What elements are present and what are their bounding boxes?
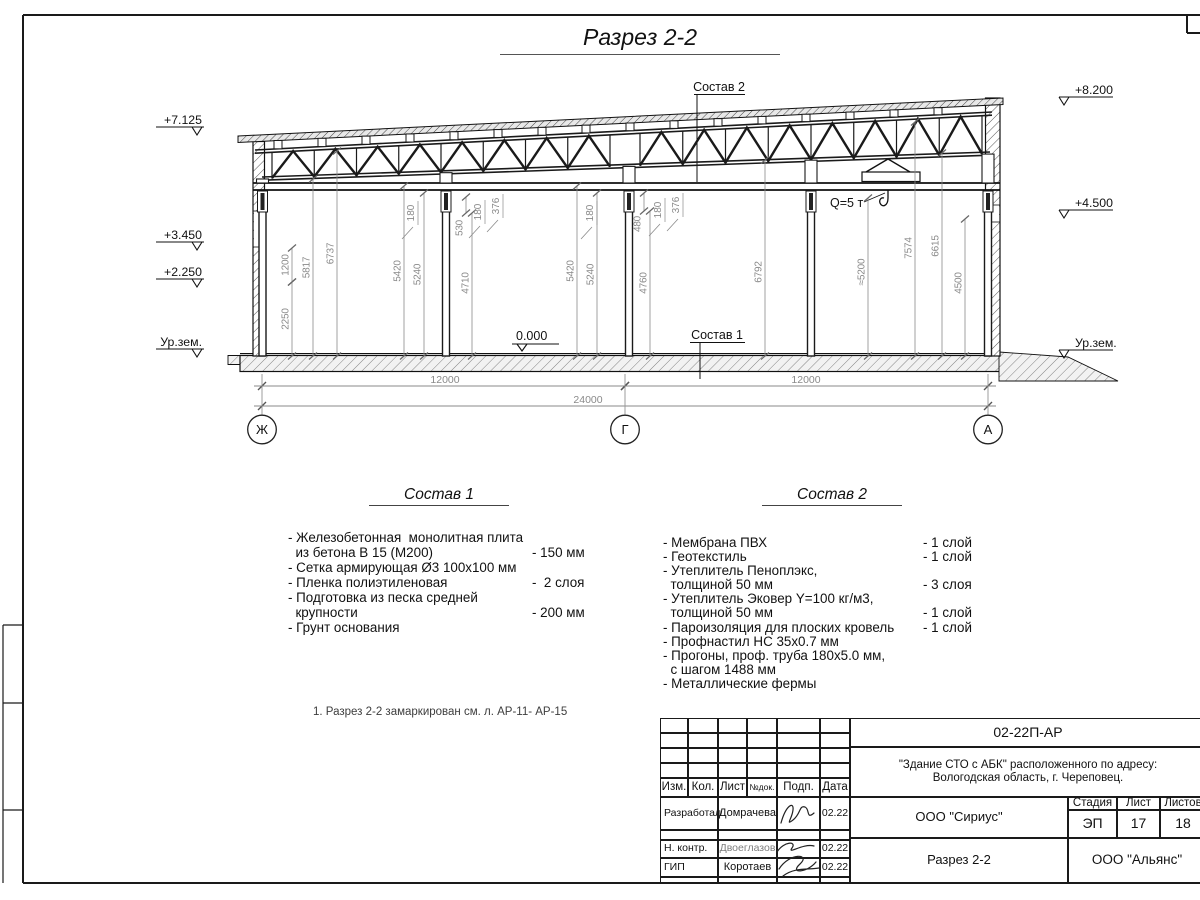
tb-col-data: Дата: [820, 778, 850, 797]
composition2-row: толщиной 50 мм- 3 слоя: [663, 578, 1003, 592]
purlin: [846, 112, 854, 119]
tb-name-developer: Домрачева: [718, 797, 777, 830]
composition2-title: Состав 2: [762, 486, 902, 506]
layer-text: толщиной 50 мм: [663, 577, 773, 592]
composition1-row: - Подготовка из песка средней: [288, 590, 608, 605]
composition1-row: - Сетка армирующая Ø3 100х100 мм: [288, 560, 608, 575]
tb-sheets-value: 18: [1160, 810, 1200, 838]
tb-empty-cell: [660, 733, 688, 748]
tb-empty-cell: [688, 733, 718, 748]
leader-line: [667, 219, 678, 231]
dim-label: 4710: [461, 272, 472, 294]
composition2-row: - Утеплитель Пеноплэкс,: [663, 564, 1003, 578]
layer-value: - 1 слой: [923, 536, 972, 550]
composition1-row: - Железобетонная монолитная плита: [288, 530, 608, 545]
elevation-mark-arrow: [1059, 97, 1069, 105]
tb-sheets-label: Листов: [1160, 797, 1200, 810]
composition2-row: - Геотекстиль- 1 слой: [663, 550, 1003, 564]
truss-bearing: [257, 179, 269, 183]
layer-value: - 150 мм: [532, 545, 585, 560]
layer-value: - 1 слой: [923, 606, 972, 620]
truss-bearing: [805, 160, 817, 183]
purlin: [494, 130, 502, 138]
tb-empty-cell: [688, 763, 718, 778]
tb-sheet-value: 17: [1117, 810, 1160, 838]
ground-ramp-right: [999, 352, 1118, 381]
composition1-list: - Железобетонная монолитная плита из бет…: [288, 530, 608, 635]
composition2-row: с шагом 1488 мм: [663, 663, 1003, 677]
tb-sig-gip: [777, 858, 820, 877]
span-dim-label: 12000: [430, 374, 459, 386]
composition1-row: крупности- 200 мм: [288, 605, 608, 620]
layer-text: - Геотекстиль: [663, 549, 747, 564]
sheet-note: 1. Разрез 2-2 замаркирован см. л. АР-11-…: [313, 706, 567, 718]
composition2-list: - Мембрана ПВХ- 1 слой- Геотекстиль- 1 с…: [663, 536, 1003, 691]
tb-empty-cell: [660, 718, 688, 733]
tb-empty-cell: [820, 748, 850, 763]
dim-label: 7574: [904, 237, 915, 259]
dim-label: 5817: [302, 256, 313, 278]
layer-text: - Грунт основания: [288, 620, 399, 635]
tb-empty-cell: [718, 763, 747, 778]
elevation-mark-label: Ур.зем.: [1075, 336, 1117, 350]
crane-capacity-label: Q=5 т: [830, 196, 863, 210]
purlin: [626, 123, 634, 131]
tb-empty-cell: [820, 733, 850, 748]
left-margin-strip: [3, 625, 23, 883]
purlin: [582, 125, 590, 133]
leader-dim-label: 180: [473, 203, 484, 220]
purlin: [318, 138, 326, 146]
tb-empty-cell: [820, 763, 850, 778]
column-anchor: [809, 193, 813, 210]
dim-label: 4760: [639, 272, 650, 294]
layer-value: - 1 слой: [923, 550, 972, 564]
dim-label: 6737: [326, 242, 337, 264]
composition2-row: толщиной 50 мм- 1 слой: [663, 606, 1003, 620]
elevation-mark-arrow: [192, 242, 202, 250]
crane-hook-icon: [880, 190, 888, 206]
tb-date-gip: 02.22: [820, 858, 850, 877]
composition2-row: - Прогоны, проф. труба 180х5.0 мм,: [663, 649, 1003, 663]
elevation-mark-label: Ур.зем.: [160, 335, 202, 349]
tb-stage-value: ЭП: [1068, 810, 1117, 838]
tb-sheet-label: Лист: [1117, 797, 1160, 810]
purlin: [758, 116, 766, 123]
layer-text: - Металлические фермы: [663, 676, 816, 691]
layer-text: - Утеплитель Эковер Y=100 кг/м3,: [663, 591, 873, 606]
tb-col-izm: Изм.: [660, 778, 688, 797]
layer-text: крупности: [288, 605, 358, 620]
tb-empty-cell: [747, 763, 777, 778]
leader-line: [649, 224, 660, 236]
elevation-mark-label: +8.200: [1075, 83, 1113, 97]
column: [443, 192, 450, 356]
tb-empty-cell: [718, 718, 747, 733]
elevation-mark-label: +7.125: [164, 113, 202, 127]
tb-col-list: Лист: [718, 778, 747, 797]
layer-text: - Мембрана ПВХ: [663, 535, 767, 550]
tb-role-ncontr: Н. контр.: [660, 840, 718, 858]
composition2-row: - Мембрана ПВХ- 1 слой: [663, 536, 1003, 550]
purlin: [890, 110, 898, 117]
purlin: [406, 134, 414, 142]
dim-label: 5240: [586, 263, 597, 285]
drawing-sheet: { "page_title": "Разрез 2-2", "colors": …: [0, 0, 1200, 900]
truss-bearing: [440, 173, 452, 183]
svg-text:Состав 1: Состав 1: [691, 328, 743, 342]
leader-dim-label: 376: [671, 196, 682, 213]
elevation-mark-arrow: [192, 279, 202, 287]
layer-value: - 1 слой: [923, 621, 972, 635]
layer-text: из бетона В 15 (М200): [288, 545, 433, 560]
leader-line: [469, 226, 480, 238]
tb-name-ncontr: Двоеглазов: [718, 840, 777, 858]
tb-empty-cell: [660, 748, 688, 763]
purlin: [934, 108, 942, 115]
dim-label: 6792: [754, 261, 765, 283]
layer-value: - 2 слоя: [532, 575, 584, 590]
purlin: [450, 132, 458, 140]
tb-date-developer: 02.22: [820, 797, 850, 830]
composition2-row: - Пароизоляция для плоских кровель- 1 сл…: [663, 621, 1003, 635]
elevation-mark-label: +4.500: [1075, 196, 1113, 210]
tb-date-ncontr: 02.22: [820, 840, 850, 858]
elevation-mark-arrow: [1059, 210, 1069, 218]
tb-empty-cell: [747, 748, 777, 763]
composition1-row: - Грунт основания: [288, 620, 608, 635]
tb-empty-cell: [747, 718, 777, 733]
column-anchor: [986, 193, 990, 210]
tb-org-middle: ООО "Сириус": [850, 797, 1068, 838]
tb-org-bottom: ООО "Альянс": [1068, 838, 1200, 883]
column: [808, 192, 815, 356]
tb-empty-cell: [777, 763, 820, 778]
tb-role-gip: ГИП: [660, 858, 718, 877]
leader-line: [581, 227, 592, 239]
zero-level-mark: 0.000: [512, 329, 559, 351]
column: [626, 192, 633, 356]
elevation-mark-arrow: [192, 127, 202, 135]
elevation-mark-arrow: [192, 349, 202, 357]
tb-empty-cell: [688, 748, 718, 763]
elevation-mark-label: +2.250: [164, 265, 202, 279]
tb-empty-cell: [820, 718, 850, 733]
dim-label: 2250: [281, 308, 292, 330]
layer-value: - 200 мм: [532, 605, 585, 620]
column-anchor: [627, 193, 631, 210]
leader-dim-label: 180: [406, 204, 417, 221]
purlin: [274, 141, 282, 149]
tb-sig-developer: [777, 797, 820, 830]
layer-text: - Железобетонная монолитная плита: [288, 530, 523, 545]
tb-project-name: "Здание СТО с АБК" расположенного по адр…: [850, 747, 1200, 797]
dim-label: 480: [633, 215, 644, 232]
column-anchor: [261, 193, 265, 210]
tb-empty-cell: [660, 763, 688, 778]
tb-col-ndok: №док.: [747, 778, 777, 797]
tb-col-podp: Подп.: [777, 778, 820, 797]
leader-dim-label: 376: [491, 197, 502, 214]
dim-label: 4500: [954, 272, 965, 294]
layer-text: - Пароизоляция для плоских кровель: [663, 620, 894, 635]
tb-empty-cell: [747, 733, 777, 748]
tb-name-gip: Коротаев: [718, 858, 777, 877]
tb-empty-cell: [688, 718, 718, 733]
layer-text: - Пленка полиэтиленовая: [288, 575, 447, 590]
purlin: [362, 136, 370, 144]
tb-empty-cell: [777, 733, 820, 748]
truss-bearing: [982, 154, 994, 183]
tb-empty-cell: [777, 748, 820, 763]
composition2-row: - Металлические фермы: [663, 677, 1003, 691]
dim-label: 5420: [566, 260, 577, 282]
tb-empty-cell: [718, 748, 747, 763]
title-block: Изм. Кол. Лист №док. Подп. Дата Разработ…: [660, 718, 1200, 883]
axis-bubbles: ЖГА: [248, 374, 1003, 444]
purlin: [670, 121, 678, 129]
column: [985, 192, 992, 356]
composition2-row: - Утеплитель Эковер Y=100 кг/м3,: [663, 592, 1003, 606]
axis-bubble-label: А: [984, 422, 993, 437]
tb-col-kol: Кол.: [688, 778, 718, 797]
layer-text: - Прогоны, проф. труба 180х5.0 мм,: [663, 648, 885, 663]
span-dim-label: 24000: [573, 394, 602, 406]
tb-role-developer: Разработал: [660, 797, 718, 830]
columns: [258, 191, 994, 356]
tb-sig-ncontr: [777, 840, 820, 858]
truss-bearing: [623, 166, 635, 183]
axis-bubble-label: Ж: [256, 422, 268, 437]
layer-text: - Утеплитель Пеноплэкс,: [663, 563, 817, 578]
purlin: [802, 114, 810, 121]
tb-sheet-title: Разрез 2-2: [850, 838, 1068, 883]
layer-text: толщиной 50 мм: [663, 605, 773, 620]
composition1-row: - Пленка полиэтиленовая- 2 слоя: [288, 575, 608, 590]
purlin: [714, 119, 722, 126]
dim-label: 5240: [413, 263, 424, 285]
leader-dim-label: 180: [585, 204, 596, 221]
svg-text:0.000: 0.000: [516, 329, 547, 343]
leader-line: [487, 220, 498, 232]
svg-text:Состав 2: Состав 2: [693, 80, 745, 94]
floor-slab: [240, 356, 1005, 372]
layer-value: - 3 слоя: [923, 578, 972, 592]
page-title: Разрез 2-2: [500, 24, 780, 55]
tb-empty-cell: [777, 718, 820, 733]
tb-doc-number: 02-22П-АР: [850, 718, 1200, 747]
tb-empty-cell: [718, 733, 747, 748]
composition1-row: из бетона В 15 (М200)- 150 мм: [288, 545, 608, 560]
span-dim-label: 12000: [791, 374, 820, 386]
column: [259, 192, 266, 356]
layer-text: с шагом 1488 мм: [663, 662, 776, 677]
purlin: [538, 127, 546, 135]
dim-label: ≈5200: [857, 258, 868, 285]
dim-label: 1200: [281, 254, 292, 276]
dim-label: 5420: [393, 260, 404, 282]
layer-text: - Подготовка из песка средней: [288, 590, 478, 605]
layer-text: - Профнастил НС 35х0.7 мм: [663, 634, 839, 649]
axis-bubble-label: Г: [621, 422, 628, 437]
dim-label: 6615: [931, 235, 942, 257]
tb-stage-label: Стадия: [1068, 797, 1117, 810]
composition1-title: Состав 1: [369, 486, 509, 506]
layer-text: - Сетка армирующая Ø3 100х100 мм: [288, 560, 516, 575]
composition2-row: - Профнастил НС 35х0.7 мм: [663, 635, 1003, 649]
column-anchor: [444, 193, 448, 210]
elevation-mark-label: +3.450: [164, 228, 202, 242]
dim-label: 530: [455, 219, 466, 236]
leader-dim-label: 180: [653, 201, 664, 218]
